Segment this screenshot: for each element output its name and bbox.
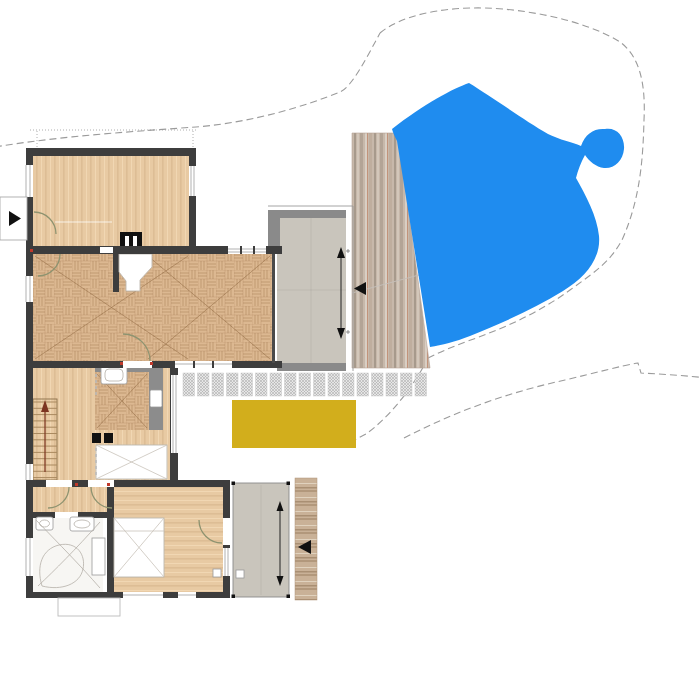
paver-tile: [183, 373, 195, 396]
appliance-icon: [92, 433, 101, 443]
lower-terrace: [232, 482, 291, 599]
door-opening: [223, 518, 230, 545]
paver-tile: [299, 373, 311, 396]
paver-tile: [256, 373, 268, 396]
door-opening: [46, 480, 72, 487]
fireplace-stub-wall: [113, 252, 119, 292]
paver-tile: [314, 373, 326, 396]
window: [189, 166, 196, 196]
glass-wall-living-east: [272, 254, 275, 363]
paver-tile: [198, 373, 210, 396]
window: [22, 538, 33, 576]
shower-bench: [92, 538, 105, 575]
window: [228, 246, 266, 254]
paver-tile: [285, 373, 297, 396]
paver-tile: [212, 373, 224, 396]
window: [22, 464, 33, 480]
window: [123, 592, 163, 598]
paver-tile: [357, 373, 369, 396]
contour-line-lower-right: [404, 363, 700, 438]
paver-tile: [415, 373, 427, 396]
living-room-parquet: [33, 254, 272, 361]
floor-plan-canvas: [0, 0, 700, 700]
appliance-icon: [104, 433, 113, 443]
wall-living-south: [26, 361, 282, 368]
vent-opening: [100, 247, 113, 253]
paver-walkway: [183, 373, 427, 396]
upper-terrace: [268, 206, 353, 371]
entry-porch: [0, 197, 27, 240]
upper-terrace-pillar: [268, 210, 280, 248]
wall-room-nw-east: [189, 148, 196, 254]
paver-tile: [328, 373, 340, 396]
paver-tile: [270, 373, 282, 396]
wood-plank-strip: [295, 478, 317, 600]
paver-tile: [227, 373, 239, 396]
door-opening: [88, 480, 114, 487]
exterior-step: [58, 598, 120, 616]
paver-tile: [372, 373, 384, 396]
yellow-deck: [232, 400, 356, 448]
paver-tile: [241, 373, 253, 396]
window: [171, 375, 178, 453]
paver-tile: [343, 373, 355, 396]
paver-tile: [401, 373, 413, 396]
floor-outlet: [236, 570, 244, 578]
storage-room: [95, 364, 163, 430]
door-opening: [123, 361, 152, 368]
window: [22, 276, 33, 302]
swimming-pond: [392, 83, 624, 347]
contour-line-lower-left: [349, 358, 428, 443]
wall-north: [26, 148, 196, 156]
paver-tile: [386, 373, 398, 396]
window: [178, 592, 196, 598]
window: [22, 165, 33, 197]
upper-terrace-bottom-beam: [277, 363, 346, 371]
floor-outlet: [213, 569, 221, 577]
wall-bath-bedroom-divider: [107, 487, 114, 592]
window: [223, 548, 230, 576]
window: [175, 361, 232, 368]
wc-icon: [150, 390, 162, 407]
sink-icon: [36, 517, 53, 530]
